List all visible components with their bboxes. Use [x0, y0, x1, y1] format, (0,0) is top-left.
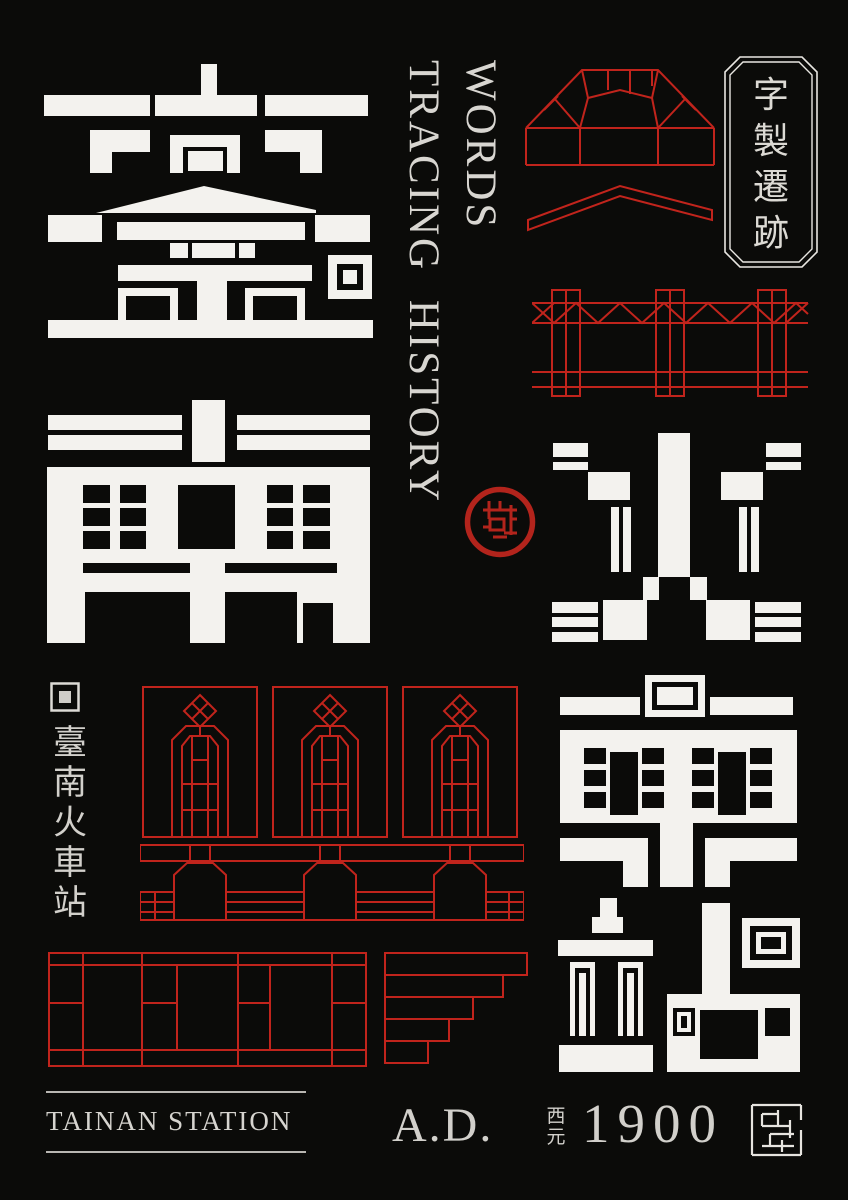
- footer-rule-top: [46, 1091, 306, 1093]
- red-seal-icon: [463, 485, 537, 559]
- plaque-text: 字 製 遷 跡: [724, 72, 818, 256]
- truss-bridge-illustration: [532, 288, 810, 402]
- chevron-roof-illustration: [524, 182, 716, 234]
- words-title: WORDS: [456, 60, 505, 230]
- jian-mark-icon: [750, 1102, 806, 1158]
- side-caption: 臺 南 火 車 站: [50, 724, 90, 924]
- era-cjk: 西 元: [539, 1106, 573, 1148]
- zhan-glyph: [556, 896, 804, 1076]
- stepped-eaves-illustration: [384, 952, 530, 1070]
- square-bullet-icon: [50, 682, 80, 712]
- brick-grid-illustration: [48, 952, 368, 1068]
- che-glyph: [558, 668, 798, 888]
- fanlight-illustration: [524, 62, 716, 168]
- huo-glyph: [545, 425, 805, 645]
- nan-glyph: [47, 400, 371, 645]
- station-facade-illustration: [140, 684, 524, 926]
- plaque-frame: 字 製 遷 跡: [724, 56, 818, 268]
- poster-canvas: WORDS TRACING HISTORY 字: [0, 0, 848, 1200]
- station-name: TAINAN STATION: [46, 1106, 292, 1137]
- tai-glyph: [44, 60, 374, 340]
- tracing-history-title: TRACING HISTORY: [399, 60, 448, 504]
- footer-rule-bottom: [46, 1151, 306, 1153]
- era-prefix: A.D.: [392, 1098, 493, 1153]
- year: 1900: [582, 1092, 724, 1155]
